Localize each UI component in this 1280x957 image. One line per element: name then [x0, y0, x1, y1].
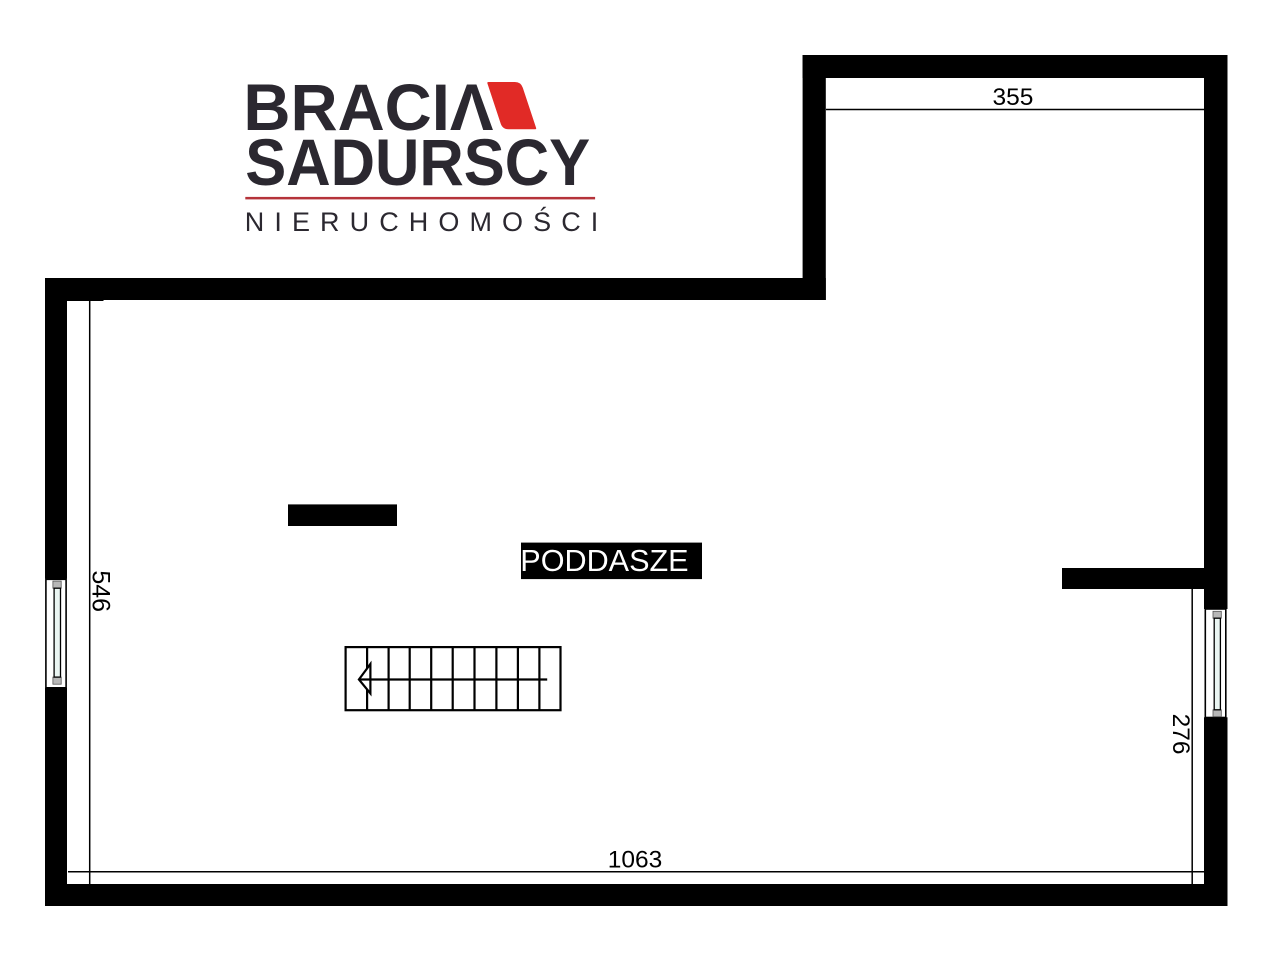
svg-text:NIERUCHOMOŚCI: NIERUCHOMOŚCI — [245, 205, 599, 237]
svg-text:276: 276 — [1167, 714, 1194, 755]
svg-text:546: 546 — [86, 570, 114, 612]
svg-text:1063: 1063 — [608, 846, 663, 873]
svg-text:PODDASZE: PODDASZE — [520, 544, 688, 578]
svg-text:SADURSCY: SADURSCY — [245, 125, 590, 199]
svg-text:355: 355 — [992, 84, 1033, 111]
